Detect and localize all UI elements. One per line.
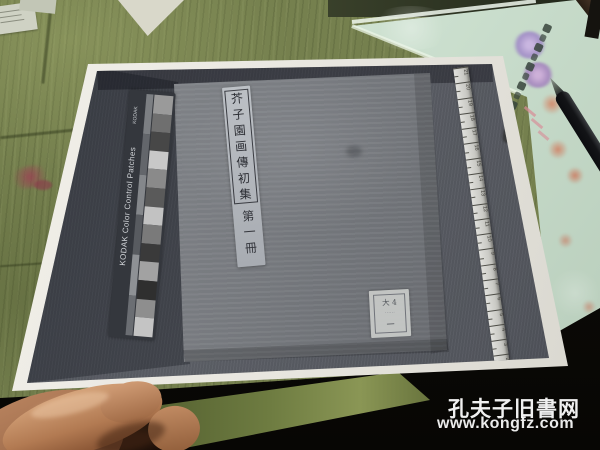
ruler-half-tick xyxy=(495,364,499,366)
ruler-number: 3 xyxy=(502,343,507,347)
kodak-patch xyxy=(150,132,171,152)
ruler-number: 15 xyxy=(475,160,481,167)
kodak-patch xyxy=(143,206,164,226)
photo-edge-mark xyxy=(501,123,516,144)
ruler-half-tick xyxy=(473,212,477,214)
ruler-half-tick xyxy=(490,333,494,335)
calligraphy-mark xyxy=(530,53,538,62)
kodak-patch xyxy=(142,224,163,244)
label-char: 一 xyxy=(243,224,256,241)
corner-label-row3: 一 xyxy=(370,318,411,331)
kodak-patch xyxy=(146,169,167,189)
label-char: 初 xyxy=(237,171,250,185)
calligraphy-mark xyxy=(522,72,530,81)
ruler-number: 6 xyxy=(496,297,501,301)
kodak-patch xyxy=(145,187,166,207)
measuring-ruler: 212019181716151413121110987654321 xyxy=(453,66,510,365)
calligraphy-mark xyxy=(513,91,521,100)
ruler-half-tick xyxy=(456,91,460,93)
calligraphy-mark xyxy=(533,42,544,53)
calligraphy-mark xyxy=(539,34,547,43)
ruler-half-tick xyxy=(493,348,497,350)
ruler-half-tick xyxy=(459,106,463,108)
ruler-half-tick xyxy=(461,121,465,123)
ruler-number: 18 xyxy=(468,114,474,121)
ruler-half-tick xyxy=(488,318,492,320)
label-char: 園 xyxy=(233,124,246,138)
ruler-half-tick xyxy=(463,137,467,139)
ruler-half-tick xyxy=(482,273,486,275)
ruler-number: 19 xyxy=(466,99,472,106)
kodak-patch xyxy=(135,299,156,319)
ruler-number: 11 xyxy=(483,221,489,227)
calligraphy-mark xyxy=(542,23,553,34)
ruler-cm-cell: 2 xyxy=(494,354,511,371)
slip-text-line xyxy=(0,19,24,23)
ruler-half-tick xyxy=(484,288,488,290)
box-pattern-swirl xyxy=(366,6,456,50)
calligraphy-mark xyxy=(516,81,527,92)
ruler-half-tick xyxy=(478,242,482,244)
book-volume-text: 第一冊 xyxy=(237,207,263,257)
calligraphy-mark xyxy=(525,61,536,72)
paint-smudge xyxy=(34,180,52,190)
label-char: 集 xyxy=(239,187,252,201)
kodak-patch xyxy=(140,243,161,263)
kodak-patch xyxy=(148,150,169,170)
ruler-half-tick xyxy=(467,167,471,169)
label-char: 画 xyxy=(235,140,248,154)
ruler-half-tick xyxy=(454,76,458,78)
ruler-number: 12 xyxy=(481,205,487,212)
ruler-half-tick xyxy=(469,182,473,184)
ruler-number: 17 xyxy=(470,130,476,137)
kodak-patch xyxy=(138,261,159,281)
label-char: 子 xyxy=(232,108,245,122)
ruler-number: 7 xyxy=(493,282,498,286)
photo-scene: KODAK Color Control Patches KODAK 芥子園画傳初… xyxy=(0,0,600,450)
orange-floral-decoration xyxy=(558,233,573,248)
ruler-number: 4 xyxy=(500,328,505,332)
kodak-patch xyxy=(151,113,172,133)
cover-stain xyxy=(346,146,362,157)
ruler-number: 9 xyxy=(489,252,494,256)
ruler-half-tick xyxy=(480,258,484,260)
label-char: 冊 xyxy=(244,240,257,257)
orange-floral-decoration xyxy=(548,140,568,159)
ruler-number: 5 xyxy=(498,312,503,316)
label-char: 芥 xyxy=(230,92,243,106)
ruler-number: 8 xyxy=(491,267,496,271)
label-char: 傳 xyxy=(236,155,249,169)
slip-text-line xyxy=(0,14,22,18)
ruler-half-tick xyxy=(471,197,475,199)
ruler-number: 20 xyxy=(464,84,470,91)
orange-floral-decoration xyxy=(566,167,584,184)
kodak-patch xyxy=(133,317,154,337)
ruler-number: 21 xyxy=(462,69,468,76)
ruler-number: 14 xyxy=(477,175,483,182)
ruler-half-tick xyxy=(476,227,480,229)
ruler-number: 13 xyxy=(479,190,485,197)
book-corner-label: 大 4 ⋯⋯ 一 xyxy=(369,289,411,338)
ruler-number: 16 xyxy=(473,145,479,152)
watermark-site-url: www.kongfz.com xyxy=(437,415,574,433)
kodak-patch xyxy=(153,95,174,115)
ruler-half-tick xyxy=(486,303,490,305)
label-char: 第 xyxy=(242,208,255,225)
corner-label-row1: 大 4 xyxy=(369,296,410,309)
ruler-number: 10 xyxy=(485,236,491,243)
kodak-patch xyxy=(137,280,158,300)
ruler-half-tick xyxy=(465,152,469,154)
ruler-number: 2 xyxy=(504,358,509,362)
